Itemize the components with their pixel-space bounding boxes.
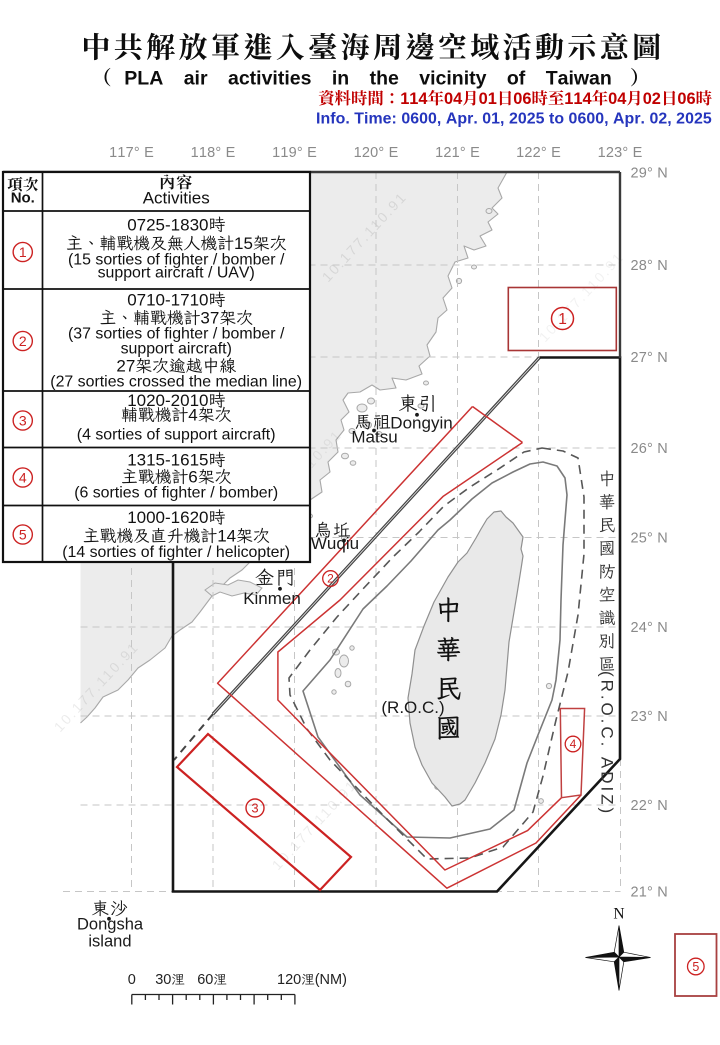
svg-text:06: 06	[677, 90, 695, 108]
svg-text:PLA air activities in the vici: PLA air activities in the vicinity of Ta…	[124, 68, 612, 90]
svg-text:29° N: 29° N	[631, 166, 668, 182]
svg-text:24° N: 24° N	[631, 620, 668, 636]
svg-text:5: 5	[19, 526, 27, 542]
svg-text:(R.O.C.): (R.O.C.)	[381, 698, 444, 717]
svg-text:1: 1	[558, 311, 567, 328]
svg-text:(NM): (NM)	[315, 972, 347, 988]
svg-text:Kinmen: Kinmen	[243, 589, 301, 608]
svg-text:4: 4	[188, 406, 197, 425]
svg-text:support aircraft): support aircraft)	[121, 340, 232, 357]
svg-text:island: island	[88, 933, 131, 951]
svg-text:22° N: 22° N	[631, 798, 668, 814]
svg-text:0725-1830: 0725-1830	[127, 215, 208, 234]
svg-text:1: 1	[19, 244, 27, 260]
svg-text:01: 01	[479, 90, 497, 108]
svg-text:3: 3	[19, 412, 27, 428]
svg-text:Dongsha: Dongsha	[77, 916, 144, 934]
svg-text:14: 14	[217, 527, 236, 546]
svg-text:(4 sorties of support aircraft: (4 sorties of support aircraft)	[77, 427, 276, 444]
svg-text:(6 sorties of fighter / bomber: (6 sorties of fighter / bomber)	[74, 485, 278, 502]
svg-text:121° E: 121° E	[435, 145, 480, 161]
svg-text:30: 30	[155, 972, 171, 988]
svg-text:60: 60	[197, 972, 213, 988]
svg-text:Wuqiu: Wuqiu	[311, 534, 359, 553]
svg-text:117° E: 117° E	[109, 145, 154, 161]
svg-text:23° N: 23° N	[631, 709, 668, 725]
svg-text:04: 04	[608, 90, 627, 108]
svg-text:5: 5	[692, 960, 699, 974]
svg-text:Matsu: Matsu	[351, 428, 397, 447]
svg-text:1000-1620: 1000-1620	[127, 508, 208, 527]
svg-text:support aircraft / UAV): support aircraft / UAV)	[98, 265, 255, 282]
svg-text:4: 4	[570, 737, 577, 751]
svg-text:118° E: 118° E	[191, 145, 236, 161]
svg-text:No.: No.	[11, 190, 35, 207]
svg-text:120° E: 120° E	[354, 145, 399, 161]
svg-text:N: N	[613, 906, 624, 923]
svg-text:04: 04	[444, 90, 463, 108]
svg-text:0710-1710: 0710-1710	[127, 290, 208, 309]
svg-text:25° N: 25° N	[631, 531, 668, 547]
svg-text:2: 2	[19, 333, 27, 349]
svg-text:0: 0	[128, 972, 136, 988]
svg-text:15: 15	[234, 234, 253, 253]
svg-text:(27 sorties crossed the median: (27 sorties crossed the median line)	[50, 374, 302, 391]
svg-text:Info. Time: 0600, Apr. 01, 202: Info. Time: 0600, Apr. 01, 2025 to 0600,…	[316, 111, 712, 128]
svg-text:26° N: 26° N	[631, 441, 668, 457]
svg-text:(R.O.C. ADIZ): (R.O.C. ADIZ)	[598, 671, 617, 816]
svg-text:119° E: 119° E	[272, 145, 317, 161]
svg-text:120: 120	[277, 972, 301, 988]
svg-text:3: 3	[251, 801, 258, 816]
svg-text:114: 114	[400, 90, 428, 108]
svg-text:27° N: 27° N	[631, 350, 668, 366]
svg-text:2: 2	[327, 572, 334, 586]
svg-text:28° N: 28° N	[631, 258, 668, 274]
svg-text:123° E: 123° E	[598, 145, 643, 161]
svg-text:122° E: 122° E	[516, 145, 561, 161]
svg-text:02: 02	[643, 90, 661, 108]
svg-text:Dongyin: Dongyin	[390, 414, 452, 433]
svg-text:4: 4	[19, 469, 27, 485]
svg-text:06: 06	[513, 90, 531, 108]
svg-text:21° N: 21° N	[631, 885, 668, 901]
svg-text:114: 114	[564, 90, 592, 108]
svg-text:Activities: Activities	[143, 189, 210, 208]
svg-text:(14 sorties of fighter / helic: (14 sorties of fighter / helicopter)	[62, 544, 290, 561]
